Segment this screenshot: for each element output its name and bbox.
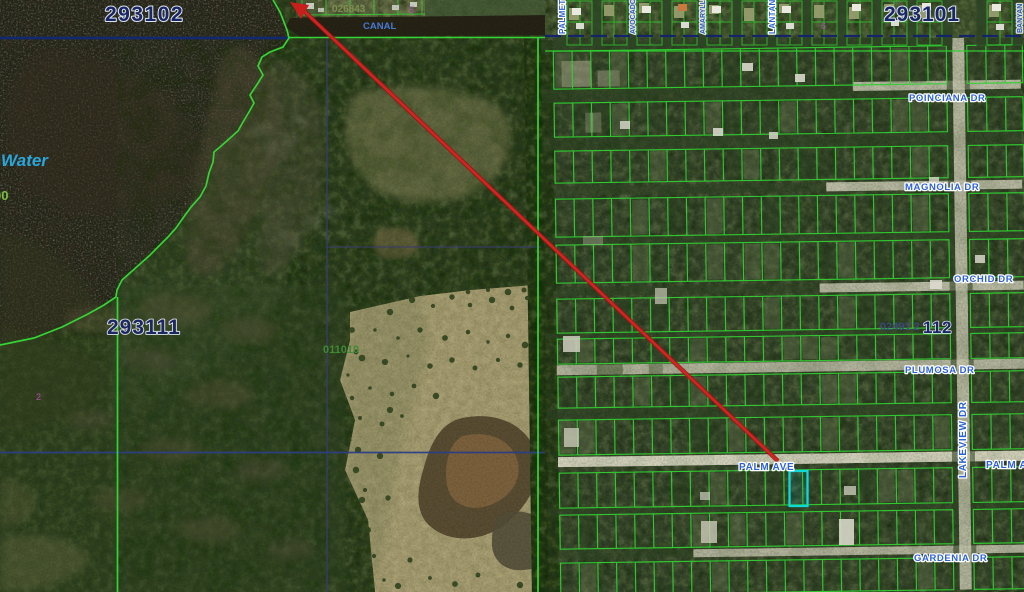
svg-text:112: 112 — [923, 318, 952, 337]
svg-text:Water: Water — [1, 151, 49, 170]
svg-text:CANAL: CANAL — [363, 21, 396, 32]
svg-text:2: 2 — [36, 392, 41, 402]
svg-text:PALM A: PALM A — [986, 460, 1024, 471]
svg-text:LAKEVIEW DR: LAKEVIEW DR — [958, 401, 969, 478]
svg-text:293102: 293102 — [105, 3, 184, 26]
svg-text:02491 2: 02491 2 — [880, 321, 920, 333]
svg-text:LANTANA: LANTANA — [768, 0, 777, 34]
svg-text:5: 5 — [409, 5, 414, 15]
svg-text:AMARYLLIS: AMARYLLIS — [700, 0, 707, 34]
svg-text:293101: 293101 — [884, 3, 960, 26]
svg-text:AVOCADO: AVOCADO — [630, 0, 637, 34]
svg-text:GARDENIA DR: GARDENIA DR — [914, 553, 987, 564]
svg-text:00: 00 — [0, 188, 8, 203]
svg-text:6: 6 — [821, 21, 826, 31]
svg-text:MAGNOLIA DR: MAGNOLIA DR — [905, 182, 979, 193]
svg-text:POINCIANA DR: POINCIANA DR — [909, 93, 986, 104]
svg-text:ORCHID DR: ORCHID DR — [954, 274, 1013, 285]
svg-text:PLUMOSA DR: PLUMOSA DR — [905, 365, 975, 376]
svg-text:PALM AVE: PALM AVE — [739, 462, 794, 473]
svg-text:011010: 011010 — [323, 344, 359, 356]
svg-text:BANYAN: BANYAN — [1017, 4, 1024, 33]
svg-text:PALMETTO: PALMETTO — [558, 0, 567, 34]
svg-text:026843: 026843 — [332, 4, 366, 15]
svg-text:293111: 293111 — [107, 316, 181, 339]
